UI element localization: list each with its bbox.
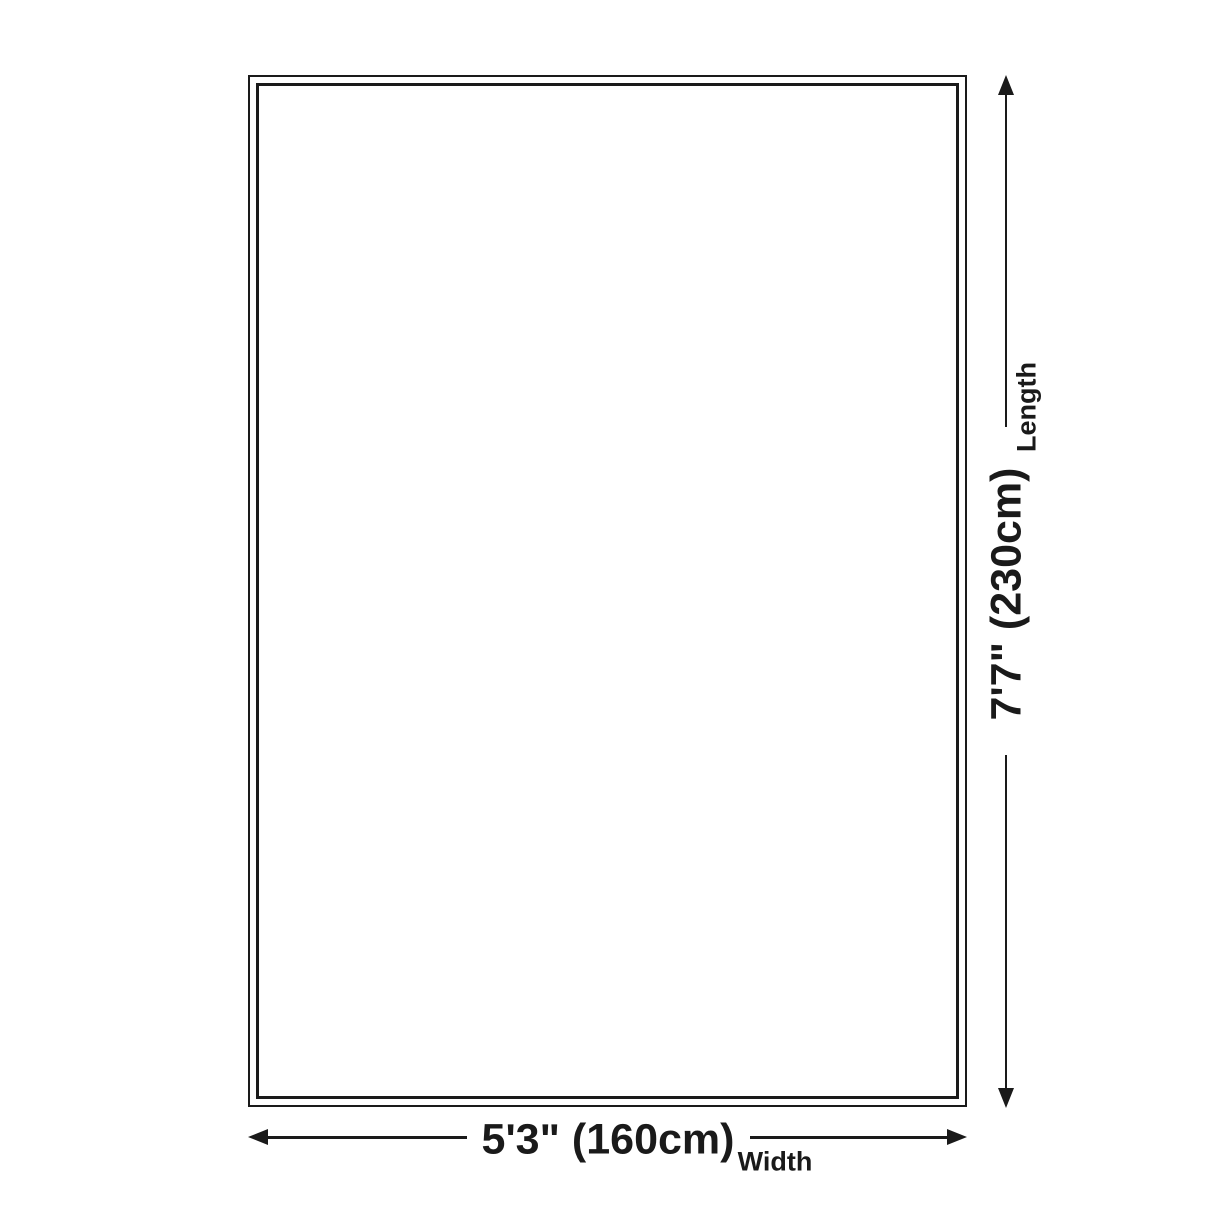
width-axis-label: Width [738,1147,813,1178]
width-dimension-value: 5'3" (160cm) [482,1116,735,1165]
width-dimension-line-right [750,1136,949,1139]
length-dimension-value: 7'7" (230cm) [983,468,1032,721]
product-outline-inner [256,83,959,1099]
width-arrow-left-icon [248,1129,268,1145]
size-dimension-diagram: Length 7'7" (230cm) 5'3" (160cm) Width [0,0,1214,1214]
length-arrow-down-icon [998,1088,1014,1108]
width-dimension-line-left [266,1136,467,1139]
length-axis-label: Length [1012,362,1043,452]
length-dimension-line-bottom [1005,755,1007,1089]
length-arrow-up-icon [998,75,1014,95]
width-arrow-right-icon [947,1129,967,1145]
length-dimension-line-top [1005,93,1007,427]
product-outline-outer [248,75,967,1107]
